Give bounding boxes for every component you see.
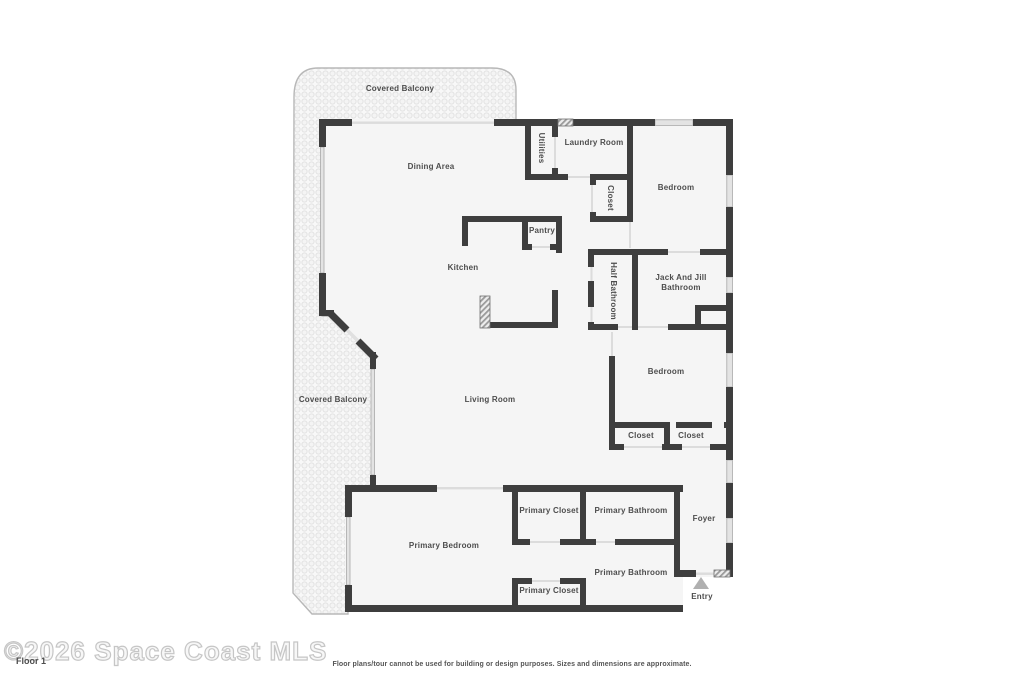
room-label-primary-closet-bottom: Primary Closet: [519, 586, 578, 596]
room-label-dining-area: Dining Area: [408, 162, 455, 172]
room-label-kitchen: Kitchen: [448, 263, 479, 273]
room-label-laundry-room: Laundry Room: [565, 138, 624, 148]
room-label-closet-right: Closet: [678, 431, 704, 441]
room-label-closet-top: Closet: [605, 185, 615, 211]
floorplan-drawing: [0, 0, 1024, 683]
room-label-foyer: Foyer: [693, 514, 716, 524]
room-label-living-room: Living Room: [465, 395, 516, 405]
entry-arrow-icon: [693, 577, 709, 589]
room-label-covered-balcony-left: Covered Balcony: [299, 395, 367, 405]
room-label-pantry: Pantry: [529, 226, 555, 236]
floorplan-canvas: Covered Balcony Dining Area Utilities La…: [0, 0, 1024, 683]
room-label-primary-closet-top: Primary Closet: [519, 506, 578, 516]
kitchen-counter-hatch: [480, 296, 490, 328]
room-label-closet-left: Closet: [628, 431, 654, 441]
room-label-primary-bathroom-bottom: Primary Bathroom: [595, 568, 668, 578]
room-label-primary-bathroom-top: Primary Bathroom: [595, 506, 668, 516]
room-label-entry: Entry: [691, 592, 712, 602]
room-label-primary-bedroom: Primary Bedroom: [409, 541, 479, 551]
room-label-half-bathroom: Half Bathroom: [608, 262, 618, 320]
room-label-covered-balcony-top: Covered Balcony: [366, 84, 434, 94]
disclaimer-text: Floor plans/tour cannot be used for buil…: [0, 661, 1024, 668]
room-label-bedroom-middle: Bedroom: [648, 367, 685, 377]
room-label-bedroom-top: Bedroom: [658, 183, 695, 193]
room-label-utilities: Utilities: [536, 133, 546, 164]
room-label-jack-and-jill-bathroom: Jack And Jill Bathroom: [644, 273, 718, 293]
